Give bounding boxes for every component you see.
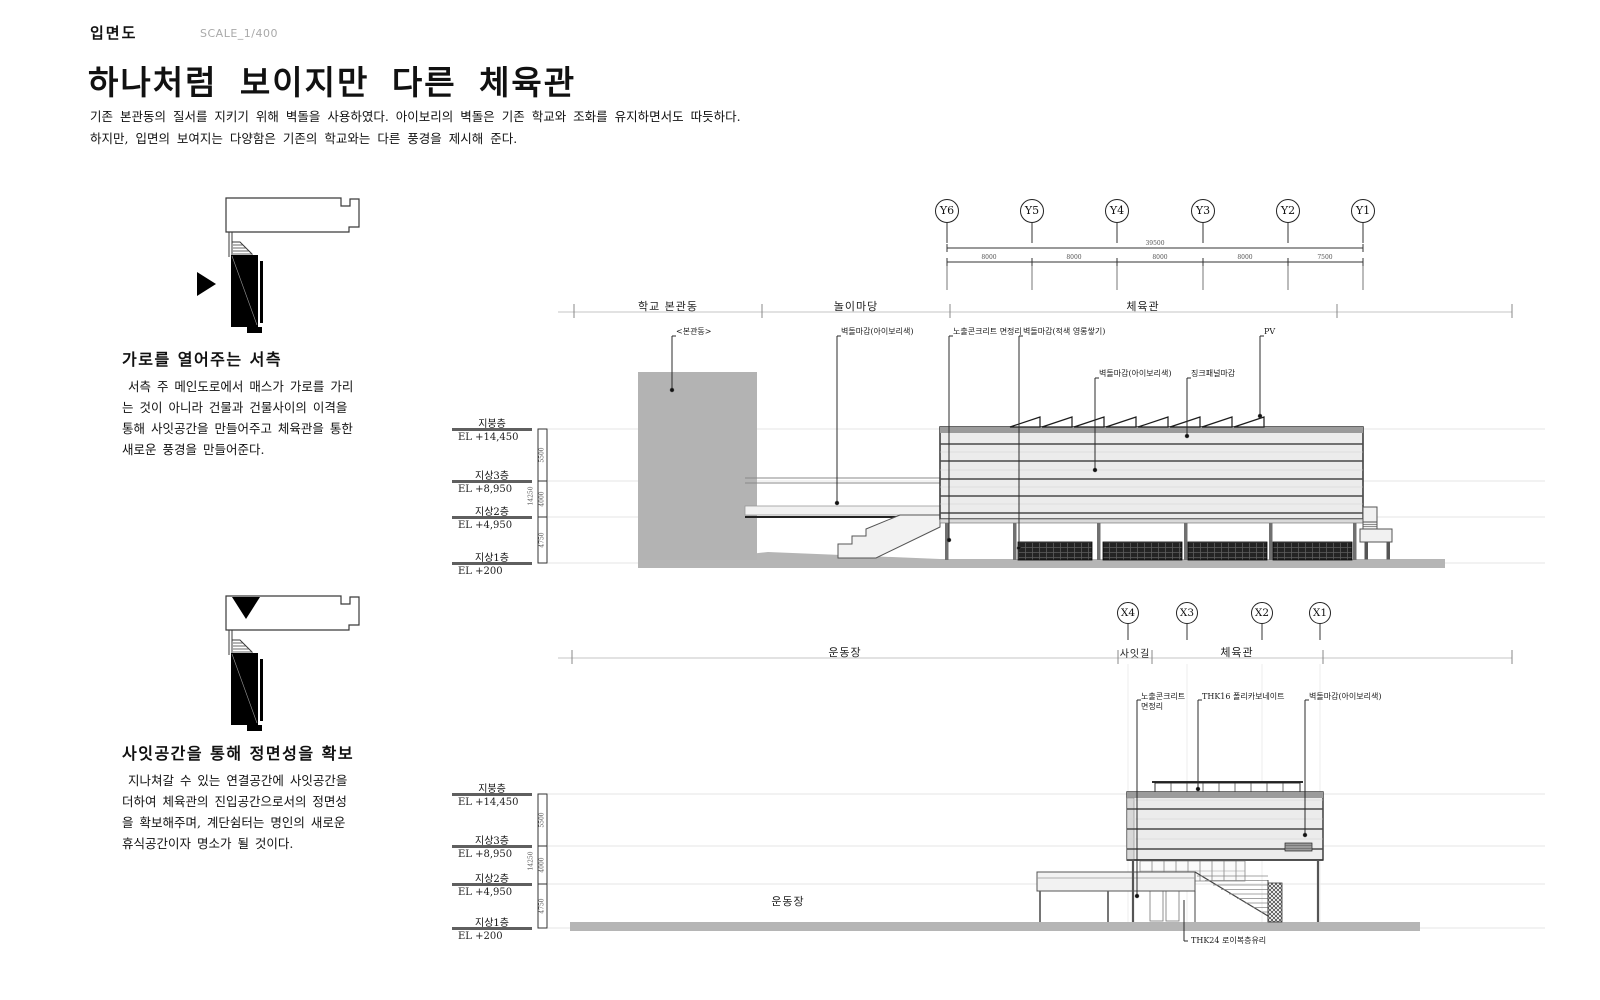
- label-polycarbonate: THK16 폴리카보네이트: [1202, 692, 1285, 702]
- front-diagram-figure: [226, 596, 359, 731]
- level-el: EL +200: [458, 931, 503, 942]
- school-main-block: [638, 372, 757, 560]
- intro-line-2: 하지만, 입면의 보여지는 다양함은 기존의 학교와는 다른 풍경을 제시해 준…: [90, 128, 517, 147]
- vdim-total: 14250: [528, 851, 535, 870]
- front-diagram-line: 을 확보해주며, 계단쉼터는 명인의 새로운: [122, 812, 345, 833]
- dim-segment: 8000: [981, 254, 996, 261]
- lower-elevation-drawing: [538, 624, 1545, 941]
- doc-type-label: 입면도: [90, 22, 137, 43]
- grid-bubble-y6: Y6: [935, 199, 959, 223]
- label-exposed-concrete-2: 노출콘크리트: [1141, 692, 1185, 702]
- louver-vent: [1285, 843, 1312, 851]
- clerestory-row: [1152, 782, 1303, 792]
- front-diagram-line: 휴식공간이자 명소가 될 것이다.: [122, 833, 293, 854]
- level-el: EL +8,950: [458, 849, 512, 860]
- pv-sawtooth-panels: [1010, 417, 1264, 427]
- gym-body-upper: [940, 427, 1363, 519]
- front-diagram-line: 더하여 체육관의 진입공간으로서의 정면성: [122, 791, 347, 812]
- front-diagram-caption: 사잇공간을 통해 정면성을 확보: [122, 740, 354, 764]
- grid-bubble-x4: X4: [1117, 602, 1139, 624]
- level-line: [452, 428, 532, 431]
- level-el: EL +4,950: [458, 520, 512, 531]
- zone-gap-path: 사잇길: [1120, 645, 1151, 660]
- level-line: [452, 793, 532, 796]
- grid-bubble-x3: X3: [1176, 602, 1198, 624]
- elevation-sheet-page: { "header": { "doc_type": "입면도", "scale"…: [0, 0, 1600, 1000]
- vdim-segment: 4000: [539, 857, 546, 872]
- grid-bubble-y4: Y4: [1105, 199, 1129, 223]
- label-pv: PV: [1264, 327, 1275, 337]
- level-el: EL +14,450: [458, 797, 519, 808]
- intro-line-1: 기존 본관동의 질서를 지키기 위해 벽돌을 사용하였다. 아이보리의 벽돌은 …: [90, 106, 741, 125]
- front-diagram-line: 지나쳐갈 수 있는 연결공간에 사잇공간을: [122, 770, 347, 791]
- level-line: [452, 516, 532, 519]
- level-line: [452, 562, 532, 565]
- label-low-e-glass: THK24 로이복층유리: [1191, 936, 1266, 946]
- label-exposed-concrete: 노출콘크리트 면정리: [953, 327, 1022, 337]
- level-el: EL +4,950: [458, 887, 512, 898]
- west-diagram-line: 서측 주 메인도로에서 매스가 가로를 가리: [122, 376, 353, 397]
- level-line: [452, 883, 532, 886]
- west-diagram-figure: [197, 198, 359, 333]
- zone-gym-2: 체육관: [1220, 644, 1253, 660]
- dim-segment: 8000: [1152, 254, 1167, 261]
- stair-hatch-block: [1268, 883, 1282, 922]
- zone-school-block: 학교 본관동: [638, 298, 698, 314]
- scale-label: SCALE_1/400: [200, 27, 278, 40]
- upper-elevation-drawing: [538, 223, 1545, 568]
- page-title: 하나처럼 보이지만 다른 체육관: [88, 56, 576, 104]
- level-el: EL +200: [458, 566, 503, 577]
- vdim-segment: 4750: [539, 898, 546, 913]
- level-el: EL +14,450: [458, 432, 519, 443]
- vdim-segment: 4750: [539, 532, 546, 547]
- zone-field: 운동장: [828, 644, 861, 660]
- level-el: EL +8,950: [458, 484, 512, 495]
- west-diagram-line: 는 것이 아니라 건물과 건물사이의 이격을: [122, 397, 347, 418]
- label-exposed-concrete-2b: 면정리: [1141, 702, 1163, 712]
- label-brick-ivory-2: 벽돌마감(아이보리색): [1099, 369, 1171, 379]
- grid-bubble-x1: X1: [1309, 602, 1331, 624]
- grid-bubble-y2: Y2: [1276, 199, 1300, 223]
- grid-bubble-y5: Y5: [1020, 199, 1044, 223]
- west-diagram-line: 통해 사잇공간을 만들어주고 체육관을 통한: [122, 418, 353, 439]
- level-line: [452, 480, 532, 483]
- west-diagram-line: 새로운 풍경을 만들어준다.: [122, 439, 264, 460]
- dim-total: 39500: [1145, 240, 1164, 247]
- label-brick-red: 벽돌마감(적색 영롱쌓기): [1023, 327, 1105, 337]
- vdim-segment: 5500: [539, 447, 546, 462]
- label-main-block: <본관동>: [676, 327, 712, 337]
- dim-segment: 8000: [1237, 254, 1252, 261]
- west-diagram-caption: 가로를 열어주는 서측: [122, 346, 282, 370]
- level-line: [452, 927, 532, 930]
- ground-field-label: 운동장: [771, 893, 804, 909]
- label-zinc-panel: 징크패널마감: [1191, 369, 1235, 379]
- zone-gym: 체육관: [1126, 298, 1159, 314]
- grid-bubble-y3: Y3: [1191, 199, 1215, 223]
- vdim-segment: 4000: [539, 491, 546, 506]
- label-brick-ivory: 벽돌마감(아이보리색): [841, 327, 913, 337]
- level-line: [452, 845, 532, 848]
- grid-bubble-y1: Y1: [1351, 199, 1375, 223]
- label-brick-ivory-3: 벽돌마감(아이보리색): [1309, 692, 1381, 702]
- zone-playground: 놀이마당: [834, 298, 878, 314]
- vdim-segment: 5500: [539, 812, 546, 827]
- view-direction-west-arrow-icon: [197, 272, 216, 296]
- dim-segment: 8000: [1066, 254, 1081, 261]
- grid-bubble-x2: X2: [1251, 602, 1273, 624]
- dim-segment: 7500: [1317, 254, 1332, 261]
- vdim-total: 14250: [528, 486, 535, 505]
